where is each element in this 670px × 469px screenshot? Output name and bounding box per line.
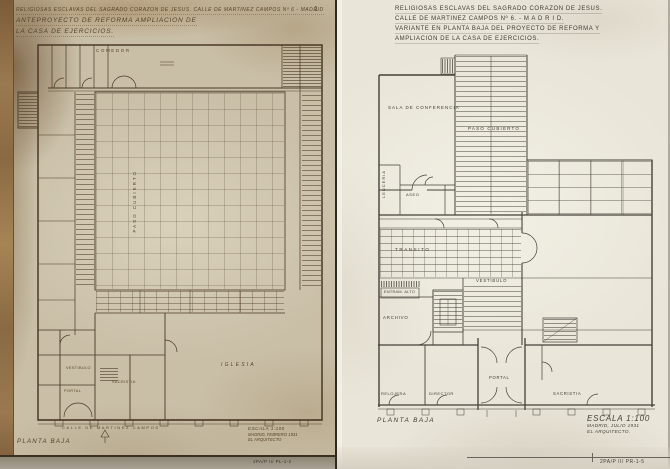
- scale-line: EL ARQUITECTO: [248, 438, 298, 442]
- grid-courtyard: [96, 93, 284, 289]
- right-scale-block: ESCALA 1:100 MADRID, JULIO 1931 EL ARQUI…: [587, 415, 650, 434]
- hatch-stair-top: [442, 59, 454, 73]
- room-label-sacristia: SACRISTIA: [553, 392, 581, 396]
- floor-label: PLANTA BAJA: [377, 418, 435, 425]
- grid-transito: [380, 229, 521, 277]
- scale-line: EL ARQUITECTO.: [587, 430, 650, 435]
- room-label-portal: PORTAL: [489, 376, 510, 380]
- room-label-paso-cubierto: PASO CUBIERTO: [468, 127, 520, 132]
- room-label-sala-de-conferencia: SALA DE CONFERENCIA: [388, 106, 460, 111]
- sheet-bottom-edge: [467, 457, 670, 458]
- left-title-line: LA CASA DE EJERCICIOS.: [16, 28, 114, 37]
- right-title-line: RELIGIOSAS ESCLAVAS DEL SAGRADO CORAZON …: [395, 6, 602, 14]
- room-label-relojera: RELOJERA: [381, 392, 406, 396]
- room-label-aseo: ASEO: [406, 193, 420, 197]
- stripes-vestibulo: [464, 286, 521, 329]
- hatch-staircase: [434, 291, 462, 331]
- scale-line: MADRID, JULIO 1931: [587, 424, 650, 429]
- scale-line: ESCALA 1:100: [248, 427, 298, 432]
- sheet-left-edge: [337, 0, 342, 469]
- room-label-vestibulo: VESTIBULO: [476, 279, 507, 283]
- hatch-paso-cubierto: [76, 94, 94, 288]
- hatch-stair-topright: [283, 47, 321, 87]
- room-label-iglesia: IGLESIA: [221, 363, 256, 368]
- left-title-block: RELIGIOSAS ESCLAVAS DEL SAGRADO CORAZON …: [16, 7, 324, 39]
- right-title-block: RELIGIOSAS ESCLAVAS DEL SAGRADO CORAZON …: [395, 6, 602, 46]
- room-label-entramado-alto: ENTRAM. ALTO: [384, 291, 415, 295]
- scan-background-strip: [337, 447, 670, 469]
- room-label-sacristia: SACRISTIA: [112, 381, 136, 385]
- room-label-transito: TRANSITO: [395, 248, 430, 253]
- right-sheet: RELIGIOSAS ESCLAVAS DEL SAGRADO CORAZON …: [337, 0, 670, 469]
- room-label-archivo: ARCHIVO: [383, 316, 409, 320]
- floor-label: PLANTA BAJA: [17, 439, 71, 445]
- room-label-director: DIRECTOR: [429, 392, 454, 396]
- grid-terrace: [528, 161, 651, 214]
- room-label-vestibulo: VESTIBULO: [66, 367, 91, 371]
- hatch-entramado: [381, 281, 421, 287]
- right-title-line: AMPLIACION DE LA CASA DE EJERCICIOS.: [395, 36, 539, 44]
- registration-tick: [592, 453, 593, 462]
- archival-scan: RELIGIOSAS ESCLAVAS DEL SAGRADO CORAZON …: [0, 0, 670, 469]
- room-label-portal: PORTAL: [64, 390, 81, 394]
- hatch-paso-cubierto: [456, 56, 526, 214]
- grid-mid-gallery: [96, 291, 284, 312]
- left-title-line: ANTEPROYECTO DE REFORMA AMPLIACION DE: [16, 17, 197, 26]
- hatch-right-gallery: [302, 95, 321, 288]
- fold-crease: [0, 0, 14, 469]
- hatch-stair-left: [19, 93, 37, 127]
- street-label: CALLE DE MARTINEZ CAMPOS: [62, 426, 160, 430]
- room-label-paso-cubierto: PASO CUBIERTO: [133, 170, 138, 233]
- left-scale-block: ESCALA 1:100 MADRID, FEBRERO 1931 EL ARQ…: [248, 427, 298, 442]
- drawing-code: 2PA/P II/ PR-1-5: [600, 460, 645, 465]
- drawing-code: 2PA/P II/ PL-1-2: [253, 460, 292, 465]
- left-title-line: RELIGIOSAS ESCLAVAS DEL SAGRADO CORAZON …: [16, 7, 324, 15]
- left-sheet: RELIGIOSAS ESCLAVAS DEL SAGRADO CORAZON …: [0, 0, 337, 469]
- hatch-stair-sacristia: [544, 319, 576, 341]
- room-label-comedor: COMEDOR: [96, 49, 131, 54]
- right-title-line: CALLE DE MARTINEZ CAMPOS Nº 6. - M A D R…: [395, 16, 564, 24]
- page-number: 1: [314, 6, 318, 13]
- right-title-line: VARIANTE EN PLANTA BAJA DEL PROYECTO DE …: [395, 26, 600, 34]
- room-label-lenceria: LENCERIA: [382, 170, 386, 198]
- scale-line: ESCALA 1:100: [587, 415, 650, 423]
